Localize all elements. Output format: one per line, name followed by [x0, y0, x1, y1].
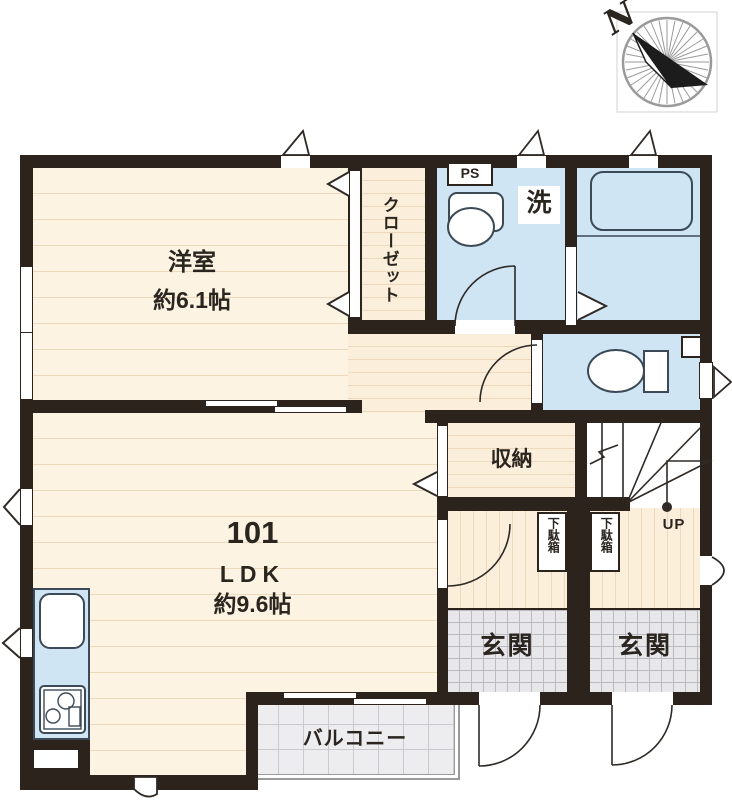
awning-western-icon [283, 131, 309, 155]
compass-needle-black [633, 33, 708, 88]
shoe-box-right-label: 下駄箱 [599, 517, 612, 553]
room-stairs [587, 413, 700, 508]
awning-toilet-icon [714, 367, 731, 397]
room-hallway-upper [348, 334, 531, 413]
window-ldk-left [20, 488, 33, 526]
wall-center-units [567, 497, 590, 705]
kitchen-window-awning [3, 628, 20, 658]
entrance-left-label: 玄関 [448, 633, 567, 661]
unit-number-label: 101 [180, 516, 325, 550]
window-western-lower [20, 332, 33, 400]
closet-label: クローゼット [379, 176, 398, 324]
ldk-size-label: 約9.6帖 [180, 592, 325, 617]
room-bathroom [577, 168, 700, 327]
compass-north-label: N [590, 0, 650, 46]
hall-door-opening [438, 520, 447, 588]
sliding-door-balcony-panel1 [283, 692, 357, 699]
ldk-window-awning [4, 489, 20, 525]
vent-window-bathroom [629, 156, 658, 168]
toilet-pipe-box [681, 336, 702, 358]
stairs-up-label: UP [652, 517, 696, 534]
entrance-left-door-arc [479, 705, 540, 766]
vent-under-kitchen [34, 750, 78, 768]
room-western [33, 168, 348, 400]
floor-plan: PS 下駄箱 下駄箱 洗 [0, 0, 732, 800]
window-western-upper [20, 266, 33, 333]
laundry-label: 洗 [518, 190, 560, 218]
vent-window-washroom [517, 156, 546, 168]
awning-bathroom-icon [631, 131, 656, 155]
balcony-label: バルコニー [250, 728, 460, 750]
shoe-box-right: 下駄箱 [590, 512, 620, 572]
window-toilet [699, 362, 713, 399]
washroom-door-opening [455, 320, 515, 334]
wall-band-lower [425, 410, 712, 423]
western-room-size: 約6.1帖 [118, 288, 266, 313]
vent-window-western [281, 156, 310, 168]
compass-needle-white [633, 33, 672, 88]
wall-right [700, 155, 712, 705]
sliding-door-western-panel1 [205, 400, 278, 407]
entrance-right-door-opening [612, 692, 673, 705]
entrance-right-door-arc [612, 705, 672, 765]
kitchen-counter [33, 588, 90, 740]
shoe-box-left: 下駄箱 [537, 512, 567, 572]
shoe-box-left-label: 下駄箱 [546, 517, 559, 553]
pipe-space-box: PS [447, 162, 493, 186]
entrance-left-door-opening [479, 692, 540, 705]
vent-right-wall [700, 556, 712, 585]
sliding-door-western-panel2 [274, 406, 347, 413]
sliding-door-balcony-panel2 [353, 698, 427, 705]
room-toilet [543, 334, 700, 410]
ldk-type-label: LDK [180, 562, 325, 587]
storage-label: 収納 [448, 448, 575, 471]
western-room-name: 洋室 [118, 250, 266, 276]
wall-left [20, 155, 33, 790]
wall-closet-right [425, 162, 437, 334]
awning-washroom-icon [519, 131, 544, 155]
wall-top [20, 155, 712, 168]
closet-folding-door [349, 170, 361, 318]
wall-storage-bottom [437, 497, 630, 511]
bathroom-door-opening [566, 247, 576, 325]
wall-bottom-left [20, 775, 256, 790]
pipe-space-label: PS [449, 166, 491, 181]
window-kitchen [20, 628, 33, 658]
storage-door-opening [438, 426, 447, 496]
laundry-label-box: 洗 [518, 186, 560, 224]
toilet-door-opening [532, 340, 542, 403]
vent-arc-right-icon [712, 557, 724, 585]
entrance-right-label: 玄関 [590, 633, 700, 661]
